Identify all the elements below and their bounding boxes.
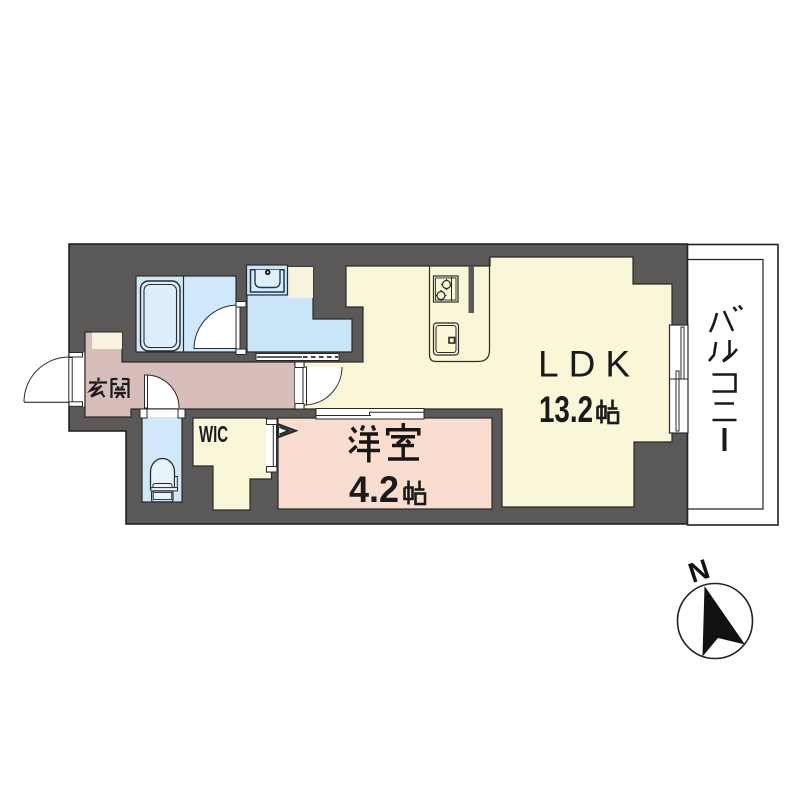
svg-text:13.2: 13.2: [539, 389, 593, 430]
svg-text:4.2: 4.2: [349, 469, 399, 510]
svg-text:LDK: LDK: [538, 344, 630, 385]
svg-text:WIC: WIC: [199, 421, 228, 447]
